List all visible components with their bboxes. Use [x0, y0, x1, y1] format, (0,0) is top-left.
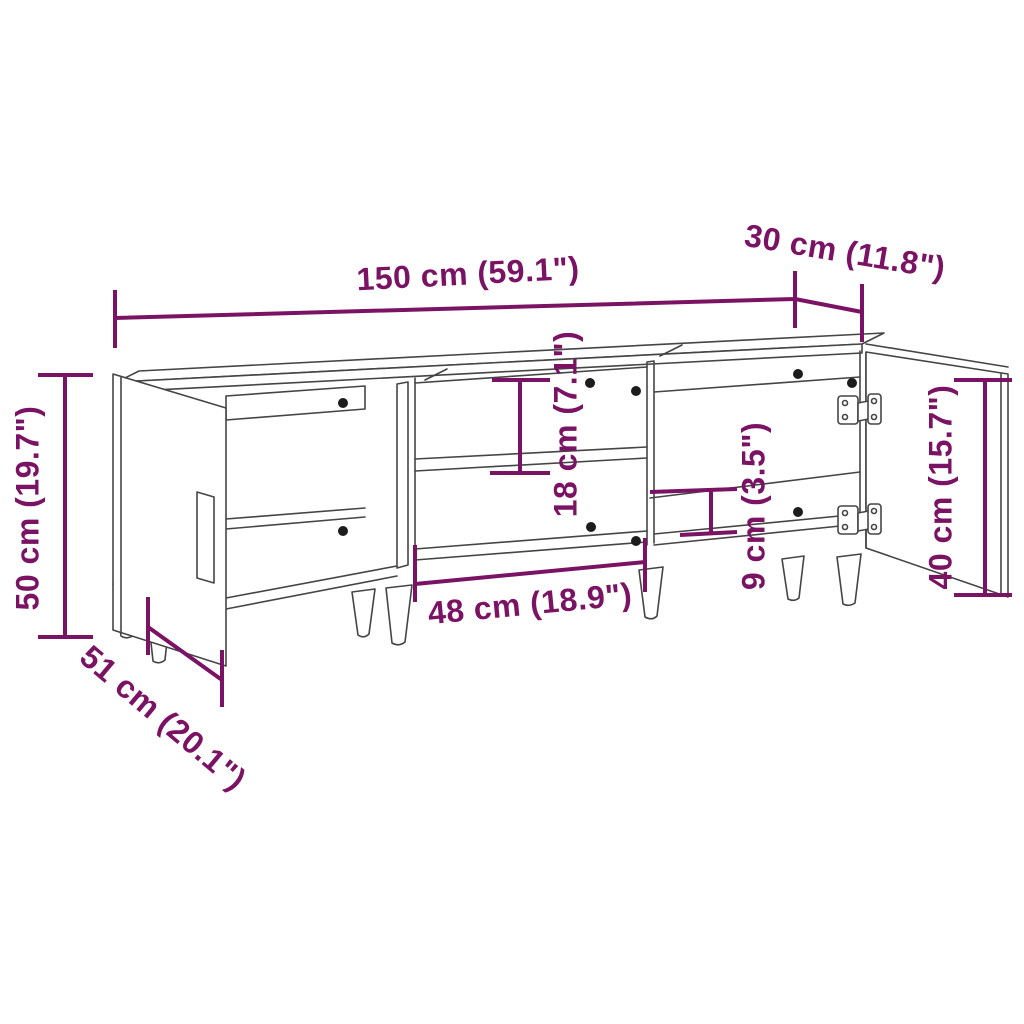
- dimension-line-top-depth: [795, 284, 862, 342]
- furniture-line-drawing: [0, 0, 1024, 1024]
- dimension-line-shelf-opening-height: [490, 380, 550, 473]
- door-handle: [197, 492, 214, 583]
- dimension-label-door-panel-height: 40 cm (15.7"): [923, 385, 960, 590]
- dimension-label-overall-height: 50 cm (19.7"): [10, 406, 47, 611]
- left-compartment: [226, 382, 408, 609]
- dimension-label-shelf-opening-height: 18 cm (7.1"): [548, 331, 585, 518]
- diagram-canvas: 150 cm (59.1") 30 cm (11.8") 50 cm (19.7…: [0, 0, 1024, 1024]
- dimension-label-plinth-height: 9 cm (3.5"): [736, 422, 773, 590]
- left-door-open: [113, 374, 226, 666]
- middle-compartment: [415, 361, 654, 560]
